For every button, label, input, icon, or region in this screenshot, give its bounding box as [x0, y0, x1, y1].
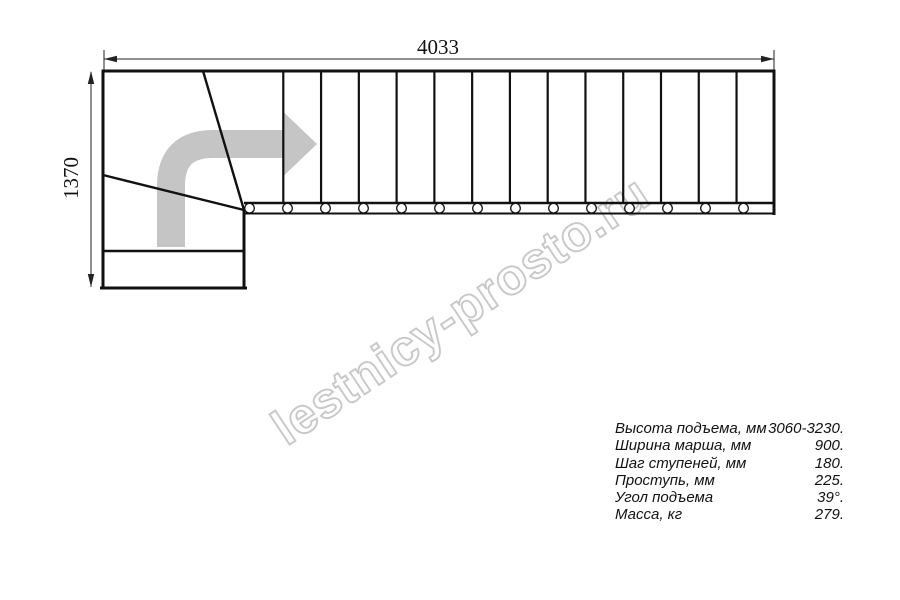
- spec-row: Ширина марша, мм900.: [615, 437, 844, 454]
- dimension-height-label: 1370: [59, 157, 83, 199]
- spec-row: Шаг ступеней, мм180.: [615, 455, 844, 472]
- spec-label: Высота подъема, мм: [615, 420, 767, 437]
- spec-row: Высота подъема, мм3060-3230.: [615, 420, 844, 437]
- spec-value: 900.: [815, 437, 844, 454]
- tread-lines: [283, 71, 736, 203]
- baluster-circles: [245, 203, 749, 213]
- baluster-circle: [359, 203, 369, 213]
- spec-row: Угол подъема39°.: [615, 489, 844, 506]
- baluster-circle: [701, 203, 711, 213]
- spec-value: 225.: [815, 472, 844, 489]
- baluster-circle: [435, 203, 445, 213]
- dim-arrow-left: [104, 56, 117, 62]
- spec-table: Высота подъема, мм3060-3230.Ширина марша…: [615, 420, 844, 524]
- spec-label: Шаг ступеней, мм: [615, 455, 746, 472]
- spec-value: 39°.: [817, 489, 844, 506]
- baluster-circle: [511, 203, 521, 213]
- staircase-outline: [102, 71, 775, 288]
- spec-label: Ширина марша, мм: [615, 437, 751, 454]
- dimension-vertical: 1370: [59, 71, 94, 287]
- dimension-horizontal: 4033: [104, 35, 774, 70]
- baluster-circle: [321, 203, 331, 213]
- spec-value: 3060-3230.: [768, 420, 844, 437]
- spec-row: Проступь, мм225.: [615, 472, 844, 489]
- staircase-drawing-page: lestnicy-prosto.ru: [0, 0, 900, 600]
- baluster-circle: [663, 203, 673, 213]
- baluster-circle: [549, 203, 559, 213]
- dim-arrow-right: [761, 56, 774, 62]
- dimension-width-label: 4033: [417, 35, 459, 59]
- dim-arrow-bottom: [88, 274, 94, 287]
- spec-label: Угол подъема: [615, 489, 713, 506]
- baluster-circle: [397, 203, 407, 213]
- baluster-circle: [739, 203, 749, 213]
- baluster-circle: [283, 203, 293, 213]
- spec-value: 180.: [815, 455, 844, 472]
- spec-label: Проступь, мм: [615, 472, 715, 489]
- baluster-circle: [245, 203, 255, 213]
- baluster-circle: [587, 203, 597, 213]
- spec-row: Масса, кг279.: [615, 506, 844, 523]
- baluster-circle: [625, 203, 635, 213]
- dim-arrow-top: [88, 71, 94, 84]
- spec-value: 279.: [815, 506, 844, 523]
- baluster-circle: [473, 203, 483, 213]
- spec-label: Масса, кг: [615, 506, 682, 523]
